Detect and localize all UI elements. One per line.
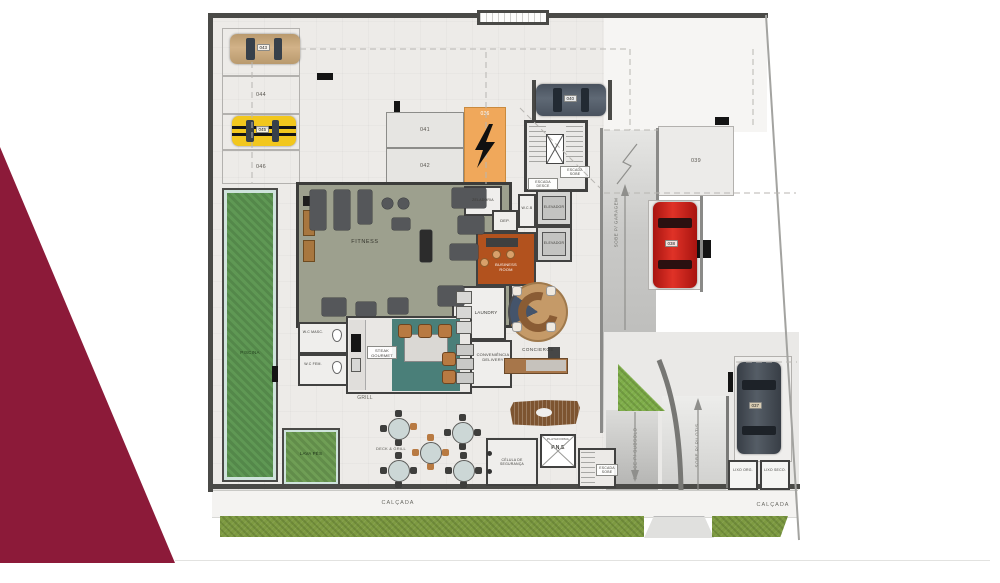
- table-2-chair-s: [459, 443, 466, 450]
- table-2-chair-n: [459, 414, 466, 421]
- concierge-counter-top: [526, 360, 566, 371]
- table-2-chair-w: [444, 429, 451, 436]
- car-040: 040: [536, 84, 606, 116]
- stall-039: 039: [658, 126, 734, 196]
- street-gate-recess: [477, 10, 549, 25]
- stair-treads-right: [566, 126, 583, 164]
- concierge-chair-3: [512, 322, 522, 332]
- stall-039-number: 039: [691, 158, 701, 164]
- stall-036-number: 036: [464, 111, 506, 117]
- car-045-number: 045: [256, 126, 269, 133]
- elevator-1-label: ELEVADOR: [537, 205, 571, 209]
- weight-tower: [420, 230, 432, 262]
- stall-042: 042: [386, 148, 464, 184]
- business-desk: [486, 238, 518, 247]
- shelf-1: [456, 344, 474, 356]
- fitness-cabinet-2: [303, 240, 315, 262]
- steak-stool-5: [442, 370, 456, 384]
- table-4-chair-e: [475, 467, 482, 474]
- steak-cooktop: [351, 334, 361, 352]
- table-3-chair-w: [380, 467, 387, 474]
- car-037: 037: [737, 362, 781, 454]
- stall-041-number: 041: [420, 127, 430, 133]
- stair-treads-left: [529, 126, 546, 164]
- celula-seguranca-label: CÉLULA DE SEGURANÇA: [490, 458, 534, 467]
- stall-040-wall-right: [608, 80, 612, 120]
- weight-rack: [358, 190, 372, 224]
- washer-1: [456, 291, 472, 304]
- stall-042-number: 042: [420, 163, 430, 169]
- table-5-chair-s: [427, 463, 434, 470]
- stall-044-number: 044: [256, 92, 266, 98]
- conveniencia-label: CONVENIÊNCIA DELIVERY: [474, 352, 512, 362]
- table-1-chair-n: [395, 410, 402, 417]
- washer-3: [456, 321, 472, 334]
- table-1-chair-s: [395, 439, 402, 446]
- lixo-seco-label: LIXO SECO.: [762, 468, 788, 472]
- bench: [392, 218, 410, 230]
- sidewalk-label-left: CALÇADA: [368, 500, 428, 507]
- stall-041: 041: [386, 112, 464, 148]
- gym-machine-5: [322, 298, 346, 316]
- business-chair-1: [492, 250, 501, 259]
- ramp-wall-right: [656, 128, 659, 200]
- steak-kitchen-counter: [349, 320, 366, 390]
- gate-mark-1: [317, 73, 333, 80]
- escada-desce-label: ESCADA DESCE: [528, 178, 558, 190]
- steak-fridge: [351, 358, 361, 372]
- car-040-rear-window: [581, 88, 589, 112]
- stall-036-ev: [464, 107, 506, 185]
- escada-sobe-top-label: ESCADA SOBE: [560, 166, 590, 178]
- exercise-bike-1: [382, 198, 393, 209]
- table-1-chair-w: [380, 425, 387, 432]
- wc-masc-label: W.C MASC.: [302, 330, 324, 334]
- deck-table-3: [388, 460, 410, 482]
- table-5-chair-n: [427, 434, 434, 441]
- steak-stool-4: [442, 352, 456, 366]
- car-037-windshield: [742, 380, 776, 390]
- gate-mark-6: [728, 372, 733, 392]
- page-bottom-line: [175, 560, 990, 561]
- stair-bottom-treads: [581, 452, 595, 484]
- fitness-label: FITNESS: [342, 239, 388, 246]
- car-043: 043: [230, 34, 300, 64]
- gate-mark-4: [715, 117, 729, 125]
- piscina-label: PISCINA: [234, 350, 266, 356]
- wall-right-of-038: [700, 196, 703, 292]
- open-court-top-right: [604, 16, 767, 132]
- steak-stool-2: [418, 324, 432, 338]
- table-3-chair-s: [395, 481, 402, 488]
- deck-grill-label: DECK & GRILL: [366, 446, 416, 451]
- car-043-number: 043: [257, 44, 270, 51]
- street-grass-right: [712, 516, 788, 537]
- lava-pes-area: [282, 428, 340, 486]
- wc-fem-label: W.C FEM.: [302, 362, 324, 366]
- concierge-label: CONCIERGE: [516, 347, 560, 353]
- property-wall-left: [208, 13, 213, 492]
- table-4-chair-n: [460, 452, 467, 459]
- business-chair-3: [480, 258, 489, 267]
- sidewalk-label-right: CALÇADA: [746, 502, 800, 509]
- exercise-bike-2: [398, 198, 409, 209]
- lixo-seco-room: [760, 460, 790, 490]
- table-4-chair-w: [445, 467, 452, 474]
- table-1-chair-e: [410, 423, 417, 430]
- table-3-chair-e: [410, 467, 417, 474]
- intercom-dot-2: [487, 469, 492, 474]
- table-3-chair-n: [395, 452, 402, 459]
- elevator-2-label: ELEVADOR: [537, 241, 571, 245]
- ramp-garagem-label: SOBE P/ GARAGEM: [614, 178, 619, 268]
- ramp-wall-left: [600, 128, 603, 433]
- street-grass-left: [220, 516, 644, 537]
- shelf-2: [456, 358, 474, 370]
- table-2-chair-e: [474, 429, 481, 436]
- car-045-windshield: [246, 120, 254, 142]
- car-038-rear-window: [658, 260, 692, 269]
- deck-table-4: [453, 460, 475, 482]
- driveway-cut: [644, 516, 714, 538]
- wcb-label: W.C.B: [517, 206, 537, 210]
- shelf-3: [456, 372, 474, 384]
- floor-plan-canvas: CALÇADA CALÇADA 044 046 041 042 036 039 …: [0, 0, 1000, 583]
- car-038-number: 038: [665, 240, 678, 247]
- lixo-org-label: LIXO ORG.: [730, 468, 756, 472]
- gym-machine-3: [450, 244, 478, 260]
- car-045-stripe-2: [232, 133, 296, 136]
- sidewalk: [212, 490, 798, 518]
- lixo-org-room: [728, 460, 758, 490]
- concierge-chair-2: [546, 286, 556, 296]
- car-043-rear-window: [274, 38, 282, 60]
- zeladoria-label: ZELADORIA: [465, 198, 501, 202]
- treadmill-1: [310, 190, 326, 230]
- table-4-chair-s: [460, 481, 467, 488]
- car-045-rear-window: [272, 120, 279, 142]
- car-037-rear-window: [742, 426, 776, 435]
- deck-table-5: [420, 442, 442, 464]
- business-chair-2: [506, 250, 515, 259]
- concierge-chair-4: [546, 322, 556, 332]
- dep-label: DEP.: [492, 218, 518, 223]
- car-038: 038: [653, 202, 697, 288]
- gym-machine-7: [388, 298, 408, 314]
- car-040-windshield: [553, 88, 562, 112]
- gate-mark-2: [394, 101, 400, 112]
- car-038-windshield: [658, 218, 692, 228]
- intercom-dot-1: [487, 451, 492, 456]
- pool-gate-mark: [272, 366, 278, 382]
- gym-machine-6: [356, 302, 376, 316]
- steak-gourmet-label: STEAK GOURMET: [367, 346, 397, 359]
- laundry-label: LAUNDRY: [468, 310, 504, 316]
- business-room-label: BUSINESS ROOM: [490, 262, 522, 272]
- steak-stool-1: [398, 324, 412, 338]
- ramp-pilotis-label: SOBE P/ PILOTIS: [695, 401, 700, 491]
- plataforma-caption: PLATAFORMA: [541, 438, 575, 442]
- car-040-number: 040: [564, 95, 577, 102]
- car-037-number: 037: [749, 402, 762, 409]
- table-5-chair-e: [442, 449, 449, 456]
- car-043-windshield: [246, 38, 255, 60]
- concierge-chair-1: [512, 286, 522, 296]
- steak-stool-3: [438, 324, 452, 338]
- stall-044: 044: [222, 76, 300, 114]
- piscina-area: [222, 188, 278, 482]
- maroon-wedge-graphic: [0, 0, 200, 583]
- grill-label: GRILL: [350, 395, 380, 401]
- stall-046-number: 046: [256, 164, 266, 170]
- elevator-shaft: [546, 134, 564, 164]
- gym-machine-2: [458, 216, 484, 234]
- deck-table-1: [388, 418, 410, 440]
- plataforma-abbr: P.N.E: [541, 445, 575, 451]
- treadmill-2: [334, 190, 350, 230]
- escada-sobe-bottom-label: ESCADA SOBE: [596, 464, 618, 476]
- deck-table-2: [452, 422, 474, 444]
- car-045: 045: [232, 116, 296, 146]
- wcb-room: [518, 194, 536, 228]
- pergola-hole: [536, 408, 552, 417]
- lava-pes-label: LAVA PÉS: [288, 451, 334, 457]
- ramp-subsolo-label: DESCE P/ SUBSOLO: [633, 409, 638, 499]
- stall-046: 046: [222, 150, 300, 184]
